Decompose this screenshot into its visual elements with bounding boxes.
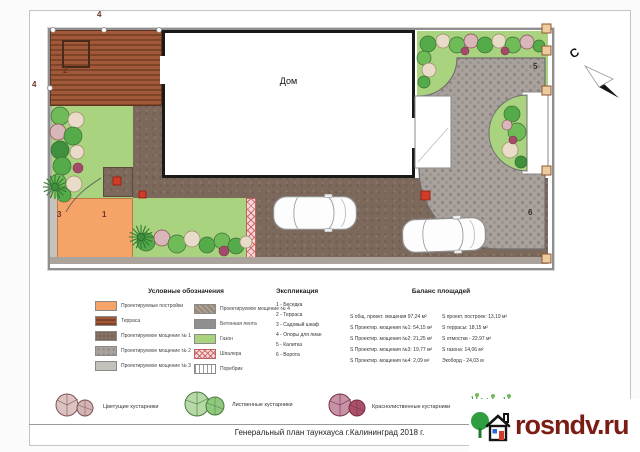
flowering-shrub-icon [52,390,100,422]
balance-item: S проект. построек: 13,19 м² [442,312,507,323]
balance-item: S Проектир. мощения №2: 21,25 м² [350,334,432,345]
concrete-band-bottom [50,257,548,264]
balance-item: S террасы: 18,15 м² [442,323,507,334]
red-leaved-shrub-label: Краснолиственные кустарники [372,404,450,410]
label-vine-supports-left: 4 [32,80,36,89]
swatch-trellis [194,349,216,359]
pergola-outline [62,40,90,68]
label-gazebo: 1 [102,210,106,219]
swatch-lawn [194,334,216,344]
swatch-paving-3 [95,361,117,371]
legend-item: Терраса [95,316,191,326]
house-outline [162,30,415,178]
garden-cabinet [103,167,133,197]
house-label: Дом [162,76,415,86]
swatch-paving-4 [194,304,216,314]
label-gate-small: 5 [533,62,537,71]
watermark: rosndv.ru [469,399,640,452]
legend-label: Поребрик [220,366,243,372]
swatch-paving-1 [95,331,117,341]
legend-item: Проектируемое мощение № 1 [95,331,191,341]
balance-section: Баланс площадей S общ. проект. мощения 9… [350,288,532,295]
balance-item: S газона: 14,06 м² [442,345,507,356]
swatch-curb [194,364,216,374]
label-terrace: 2 [63,66,67,75]
balance-title: Баланс площадей [350,288,532,295]
house-door-east [411,118,418,148]
red-leaved-shrub-icon [326,390,372,422]
site-plan-page: 4 4 2 3 1 5 6 Дом С Условные обозначения… [0,0,640,452]
driveway-area [246,178,548,264]
explication-section: Экспликация 1 - Беседка 2 - Терраса 3 - … [276,288,356,360]
legend-item: Проектируемые постройки [95,301,191,311]
explication-item: 6 - Ворота [276,350,356,360]
lawn-south [133,198,246,260]
legend-label: Бетонная лента [220,321,257,327]
gazebo-area [57,198,133,264]
balance-column-2: S проект. построек: 13,19 м² S террасы: … [442,312,507,367]
label-vine-supports-top: 4 [97,10,101,19]
explication-item: 3 - Садовый шкаф [276,320,356,330]
swatch-terrace [95,316,117,326]
balance-item: S Проектир. мощения №4: 2,09 м² [350,356,432,367]
legend-label: Газон [220,336,233,342]
balance-item: S отмостки - 22,97 м² [442,334,507,345]
explication-item: 1 - Беседка [276,300,356,310]
legend-label: Терраса [121,318,140,324]
explication-item: 2 - Терраса [276,310,356,320]
swatch-buildings [95,301,117,311]
trellis-strip [246,198,256,260]
legend-title: Условные обозначения [101,288,271,295]
legend-label: Проектируемые постройки [121,303,183,309]
legend-label: Проектируемое мощение № 3 [121,363,191,369]
flowering-shrub-label: Цветущие кустарники [103,404,158,410]
swatch-paving-2 [95,346,117,356]
balance-item: S Проектир. мощения №3: 19,77 м² [350,345,432,356]
deciduous-shrub-icon [182,388,230,422]
swatch-concrete-band [194,319,216,329]
balance-item: Экоборд - 24,03 м [442,356,507,367]
deciduous-shrub-label: Лиственные кустарники [232,402,293,408]
label-gates: 6 [528,208,532,217]
legend-item: Поребрик [194,364,290,374]
explication-title: Экспликация [276,288,356,295]
label-garden-cabinet: 3 [57,210,61,219]
legend-item: Проектируемое мощение № 3 [95,361,191,371]
legend-item: Проектируемое мощение № 2 [95,346,191,356]
house-tree-logo-icon [469,404,515,448]
balance-item: S общ. проект. мощения 97,24 м² [350,312,432,323]
curb-strip [50,198,57,264]
balance-column-1: S общ. проект. мощения 97,24 м² S Проект… [350,312,432,367]
legend-label: Проектируемое мощение № 1 [121,333,191,339]
legend-label: Шпалера [220,351,241,357]
balance-item: S Проектир. мощения №1: 54,15 м² [350,323,432,334]
legend-column-1: Проектируемые постройки Терраса Проектир… [95,301,191,371]
legend-label: Проектируемое мощение № 2 [121,348,191,354]
explication-item: 4 - Опоры для лиан [276,330,356,340]
paving-path-west [133,106,162,178]
watermark-text: rosndv.ru [515,410,629,441]
explication-item: 5 - Калитка [276,340,356,350]
